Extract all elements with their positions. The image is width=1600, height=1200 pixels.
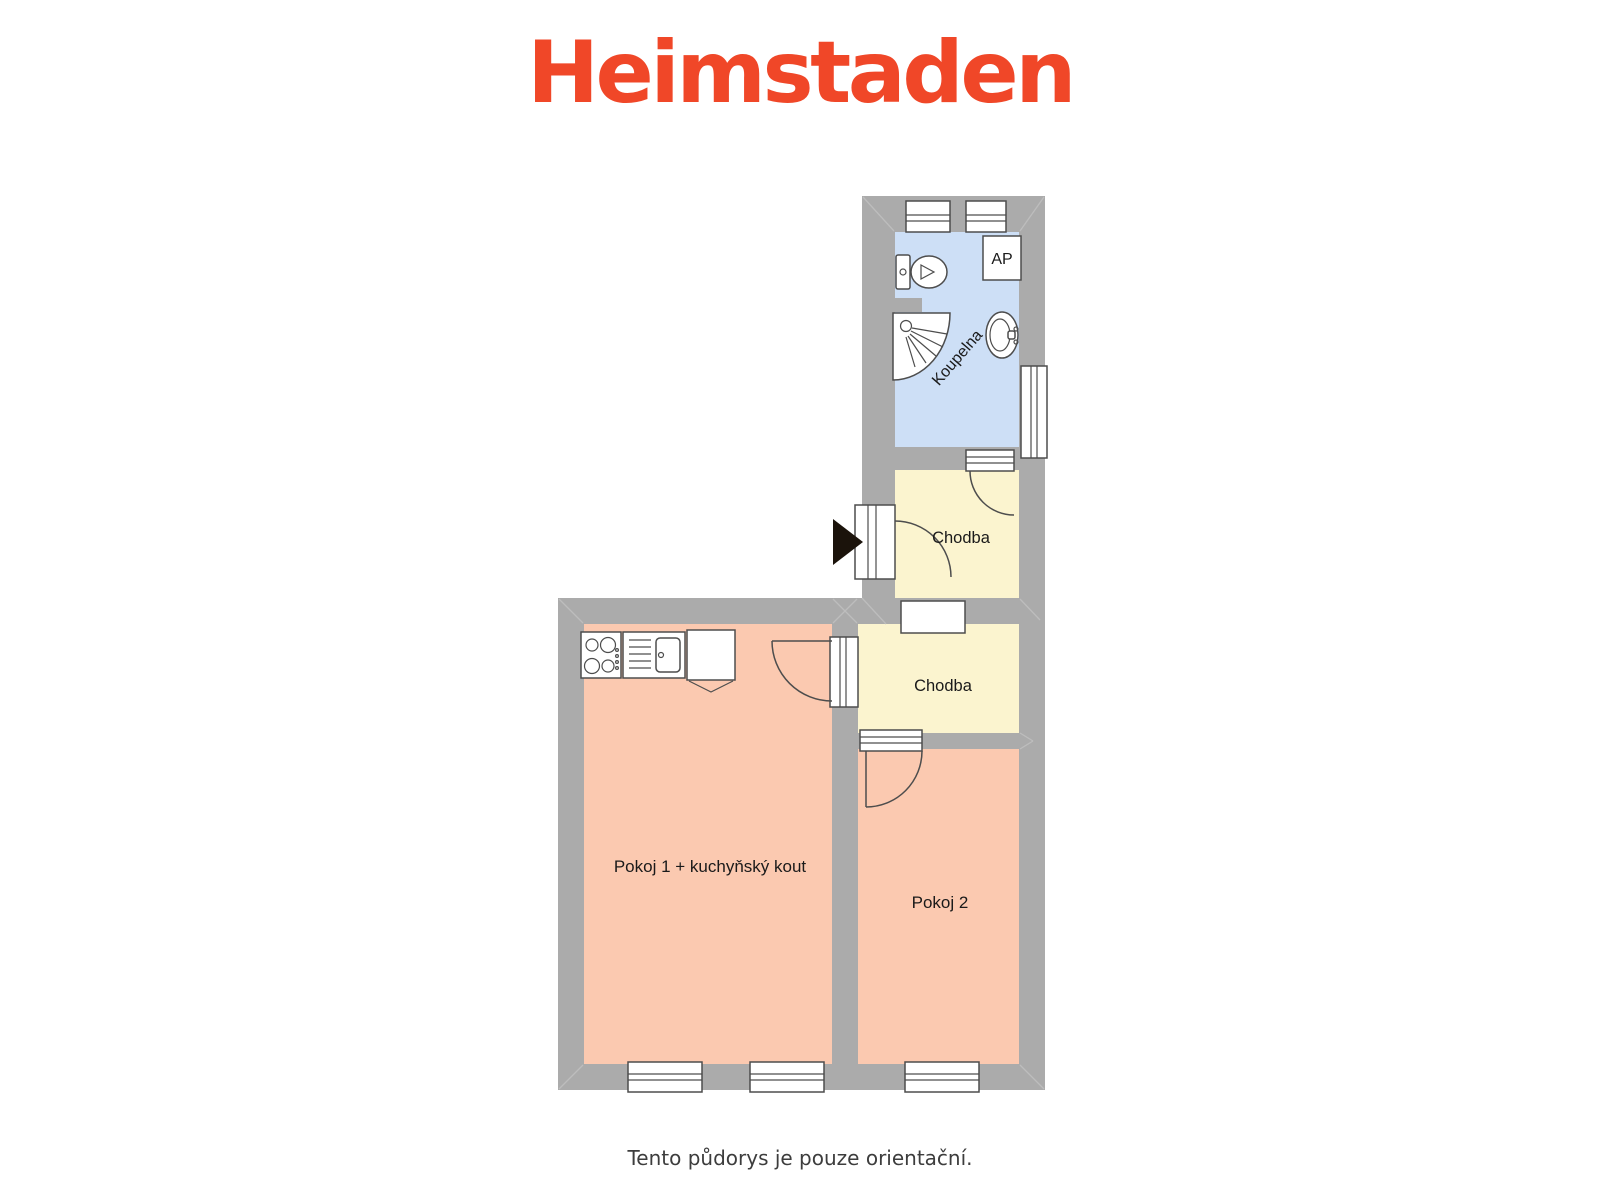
ap-label: AP — [991, 251, 1012, 268]
stove-icon — [581, 632, 621, 678]
window — [905, 1062, 979, 1092]
wall-protrusion — [895, 298, 922, 312]
window — [628, 1062, 702, 1092]
room-label-chodba-upper: Chodba — [932, 529, 991, 547]
window — [1021, 366, 1047, 458]
window — [906, 201, 950, 232]
room-label-pokoj-2: Pokoj 2 — [912, 893, 969, 912]
washbasin-icon — [986, 312, 1018, 358]
window — [966, 201, 1006, 232]
ap-box: AP — [983, 236, 1021, 280]
disclaimer-caption: Tento půdorys je pouze orientační. — [0, 1146, 1600, 1170]
window — [750, 1062, 824, 1092]
passage-opening — [901, 601, 965, 633]
page: Heimstaden — [0, 0, 1600, 1200]
room-label-chodba-lower: Chodba — [914, 677, 973, 695]
toilet-icon — [896, 255, 947, 289]
kitchen-sink-icon — [623, 632, 685, 678]
floor-plan: AP Koupelna — [0, 0, 1600, 1200]
room-label-pokoj-1: Pokoj 1 + kuchyňský kout — [614, 857, 807, 876]
